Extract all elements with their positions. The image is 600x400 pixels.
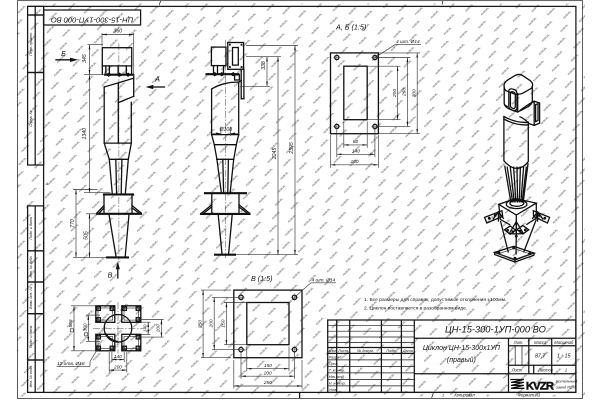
svg-text:Перв. примен.: Перв. примен. bbox=[29, 32, 33, 56]
svg-text:Инв. № дубл.: Инв. № дубл. bbox=[29, 255, 33, 277]
svg-text:1340: 1340 bbox=[82, 128, 88, 140]
svg-text:150: 150 bbox=[264, 363, 272, 369]
svg-text:Копировал: Копировал bbox=[454, 393, 475, 398]
svg-text:Масштаб: Масштаб bbox=[554, 340, 574, 345]
svg-text:Лист: Лист bbox=[337, 349, 348, 353]
svg-text:Подп.: Подп. bbox=[386, 349, 396, 353]
svg-text:200: 200 bbox=[208, 319, 214, 328]
svg-text:260: 260 bbox=[402, 88, 408, 97]
svg-text:Нач.отд.: Нач.отд. bbox=[329, 375, 345, 379]
svg-text:Формат А3: Формат А3 bbox=[518, 393, 541, 398]
svg-text:1 : 15: 1 : 15 bbox=[557, 354, 571, 360]
svg-text:506: 506 bbox=[68, 319, 74, 327]
svg-text:1: 1 bbox=[565, 367, 567, 372]
svg-text:№ докум.: № докум. bbox=[357, 349, 374, 353]
svg-text:2. Циклон поставляется в разоб: 2. Циклон поставляется в разобранном вид… bbox=[364, 305, 467, 311]
svg-text:(правый): (правый) bbox=[447, 356, 476, 364]
svg-text:А: А bbox=[45, 182, 49, 186]
svg-text:80: 80 bbox=[353, 139, 359, 145]
svg-text:А, Б (1:5): А, Б (1:5) bbox=[335, 23, 366, 32]
svg-text:Лит.: Лит. bbox=[513, 340, 524, 345]
svg-text:250: 250 bbox=[263, 380, 272, 386]
svg-text:180: 180 bbox=[350, 159, 358, 165]
svg-text:Подп. и дата: Подп. и дата bbox=[29, 326, 33, 349]
svg-text:345: 345 bbox=[82, 54, 88, 63]
svg-text:Изм: Изм bbox=[329, 349, 336, 353]
svg-text:250: 250 bbox=[197, 320, 203, 329]
svg-text:Взам. инв. №: Взам. инв. № bbox=[29, 287, 33, 309]
svg-text:Листов: Листов bbox=[537, 367, 554, 372]
svg-text:Пров.: Пров. bbox=[329, 362, 339, 366]
svg-text:360: 360 bbox=[113, 29, 122, 35]
svg-text:Б: Б bbox=[61, 49, 66, 58]
svg-text:В: В bbox=[108, 271, 113, 280]
svg-text:87,7: 87,7 bbox=[535, 354, 546, 360]
svg-text:Масса: Масса bbox=[534, 340, 547, 345]
svg-text:А: А bbox=[154, 75, 160, 84]
svg-text:338: 338 bbox=[261, 61, 267, 70]
svg-text:770: 770 bbox=[70, 219, 76, 228]
svg-text:Инв. № подл.: Инв. № подл. bbox=[29, 365, 33, 387]
svg-text:1. Все размеры для справок, до: 1. Все размеры для справок, допустимые о… bbox=[364, 297, 506, 303]
svg-text:4 шт. Ø14: 4 шт. Ø14 bbox=[396, 39, 420, 45]
svg-text:Т. контр.: Т. контр. bbox=[329, 369, 345, 373]
svg-text:2395: 2395 bbox=[289, 142, 295, 155]
svg-text:Разраб.: Разраб. bbox=[329, 356, 343, 360]
svg-text:Дата: Дата bbox=[402, 349, 413, 353]
svg-text:завод РЭП: завод РЭП bbox=[555, 384, 576, 389]
svg-text:4 шт. Ø14: 4 шт. Ø14 bbox=[312, 277, 336, 283]
svg-text:505: 505 bbox=[84, 231, 90, 240]
svg-text:Циклон ЦН-15-300х1УП: Циклон ЦН-15-300х1УП bbox=[423, 345, 501, 352]
svg-text:140: 140 bbox=[114, 354, 122, 359]
svg-text:Утв.: Утв. bbox=[329, 388, 338, 392]
svg-text:Подп. и дата: Подп. и дата bbox=[29, 217, 33, 240]
svg-text:200: 200 bbox=[392, 89, 398, 98]
svg-text:Котельный: Котельный bbox=[556, 378, 578, 383]
svg-text:140: 140 bbox=[352, 148, 360, 154]
svg-text:12 отв. Ø18: 12 отв. Ø18 bbox=[57, 361, 85, 367]
svg-text:В (1:5): В (1:5) bbox=[251, 274, 273, 283]
svg-text:Н. контр.: Н. контр. bbox=[329, 382, 346, 386]
svg-text:200: 200 bbox=[263, 370, 272, 376]
svg-text:150: 150 bbox=[221, 319, 227, 327]
svg-text:KVZR: KVZR bbox=[526, 381, 554, 393]
svg-text:140: 140 bbox=[142, 324, 147, 332]
svg-text:ЦН-15-300-1УП-000 ВО: ЦН-15-300-1УП-000 ВО bbox=[445, 324, 546, 334]
svg-text:300: 300 bbox=[411, 89, 417, 97]
svg-text:200: 200 bbox=[113, 364, 122, 369]
svg-text:Лист: Лист bbox=[511, 367, 523, 372]
svg-text:1: 1 bbox=[442, 393, 444, 398]
svg-text:2245: 2245 bbox=[272, 148, 278, 161]
svg-text:200: 200 bbox=[156, 324, 161, 333]
svg-text:300: 300 bbox=[83, 323, 89, 331]
svg-text:Справ. №: Справ. № bbox=[29, 110, 33, 126]
svg-text:ЦН-15-300-1УП-000 ВО: ЦН-15-300-1УП-000 ВО bbox=[51, 16, 133, 25]
